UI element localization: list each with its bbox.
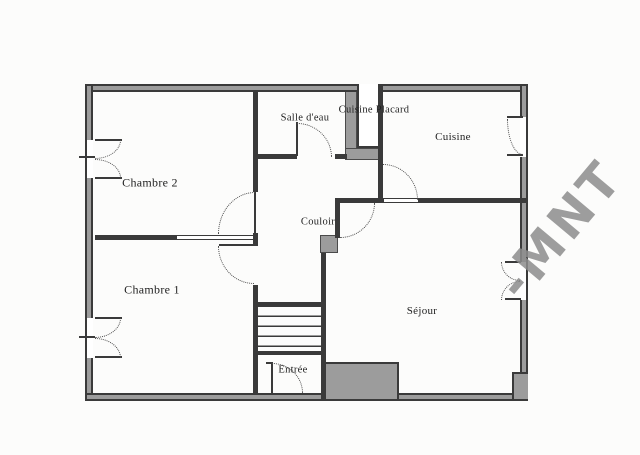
wall-band-sejour-south (325, 362, 399, 399)
window-arc-chambre-1-top (95, 318, 121, 338)
room-label-salle-deau: Salle d'eau (281, 113, 330, 124)
watermark-text: -MNT (470, 130, 640, 329)
wall-exterior-top (85, 84, 528, 92)
floor-plan: Chambre 2 Chambre 1 Salle d'eau Cuisine … (0, 0, 640, 455)
door-arc-cuisine (383, 164, 418, 200)
window-arc-chambre-1-bottom (95, 338, 121, 358)
closet-shelves (258, 307, 321, 351)
wall-salle-deau-south-right (335, 154, 347, 159)
placard-cabinet (357, 84, 378, 148)
wall-salle-deau-south-left (258, 154, 297, 159)
wall-entree-north (258, 351, 322, 355)
wall-tick-chambre-1 (79, 336, 95, 338)
window-leaf-cuisine-top (507, 116, 523, 118)
wall-chambre-divider-thin (177, 235, 253, 240)
room-label-sejour: Séjour (407, 305, 438, 317)
room-label-chambre-1: Chambre 1 (124, 283, 180, 298)
room-label-cuisine-placard: Cuisine Placard (339, 105, 410, 116)
wall-block-sejour-corner (512, 372, 528, 399)
wall-chambre-divider (95, 235, 177, 240)
door-arc-salle-deau (297, 123, 332, 157)
room-label-couloir: Couloir (301, 217, 335, 228)
door-arc-chambre-1 (218, 246, 254, 284)
wall-exterior-bottom (85, 393, 528, 401)
room-label-entree: Entrée (278, 365, 307, 376)
window-arc-chambre-2-bottom (95, 159, 121, 178)
window-opening-chambre-1 (87, 318, 93, 358)
room-label-chambre-2: Chambre 2 (122, 176, 178, 191)
wall-sejour-north-right (418, 198, 528, 203)
window-arc-chambre-2-top (95, 140, 121, 159)
window-opening-chambre-2 (87, 140, 93, 178)
wall-sejour-west (321, 253, 326, 401)
window-arc-cuisine (507, 119, 523, 155)
wall-couloir-west-upper (253, 92, 258, 192)
door-arc-chambre-2 (218, 192, 255, 234)
room-label-cuisine: Cuisine (435, 131, 471, 143)
wall-tick-chambre-2 (79, 156, 95, 158)
door-arc-sejour (340, 203, 375, 238)
